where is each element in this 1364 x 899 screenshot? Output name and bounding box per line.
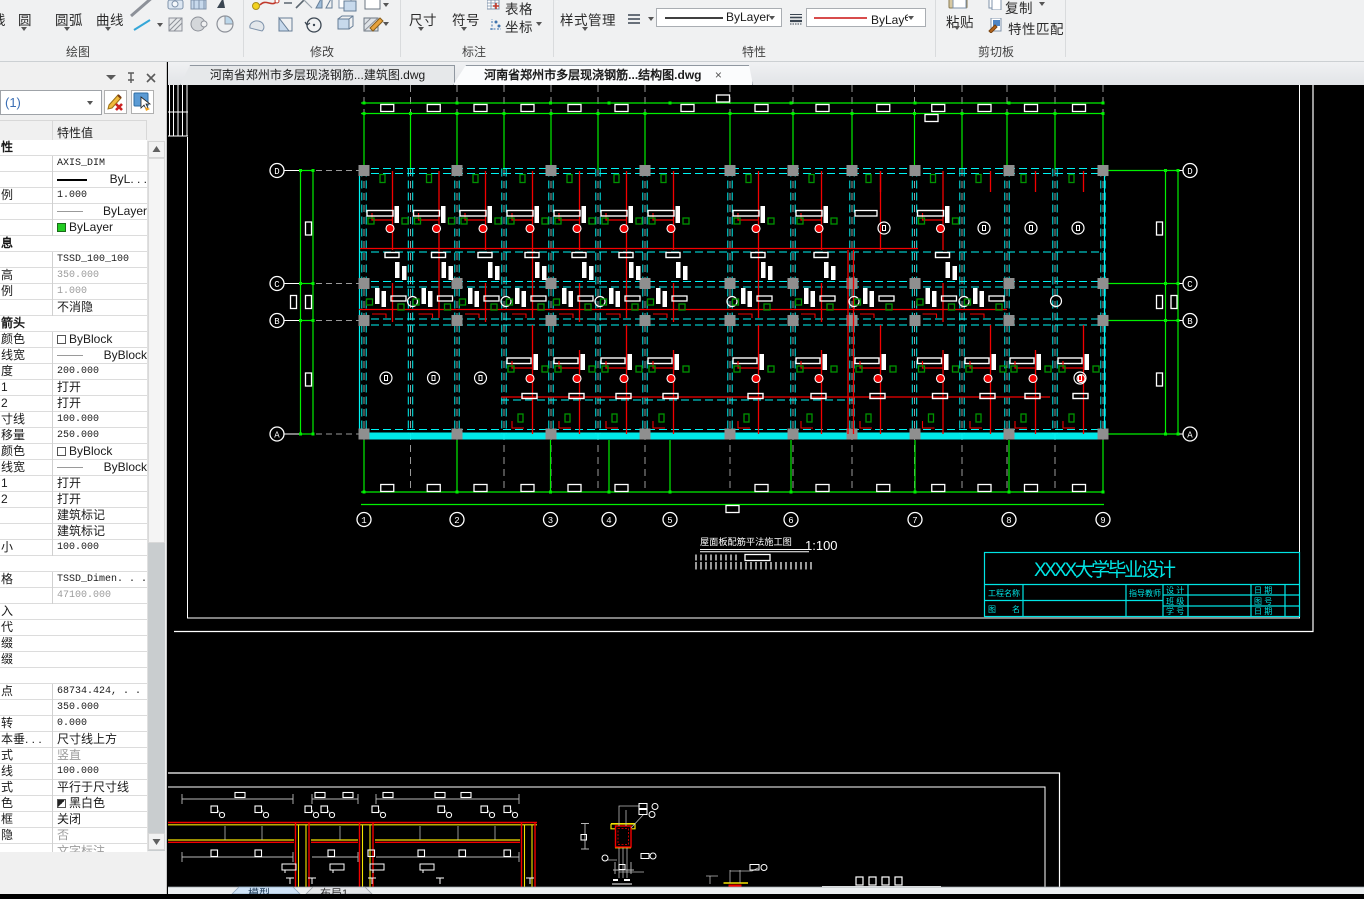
svg-text:1:100: 1:100: [805, 538, 838, 553]
svg-text:工程名称: 工程名称: [988, 588, 1020, 598]
svg-text:B: B: [274, 317, 280, 327]
svg-text:C: C: [1187, 280, 1193, 290]
svg-text:模型: 模型: [248, 886, 270, 894]
svg-text:班 级: 班 级: [1166, 596, 1184, 606]
svg-text:4: 4: [606, 516, 611, 526]
svg-text:D: D: [1187, 167, 1192, 177]
svg-text:6: 6: [788, 516, 793, 526]
svg-text:9: 9: [1100, 516, 1105, 526]
svg-text:图 名: 图 名: [988, 604, 1020, 614]
svg-text:1: 1: [361, 516, 366, 526]
svg-text:日 期: 日 期: [1254, 607, 1272, 616]
svg-text:2: 2: [454, 516, 459, 526]
svg-text:3: 3: [548, 516, 553, 526]
svg-text:日 期: 日 期: [1254, 586, 1272, 595]
svg-text:B: B: [1187, 317, 1193, 327]
svg-text:学 号: 学 号: [1166, 606, 1184, 616]
svg-text:8: 8: [1006, 516, 1011, 526]
svg-text:指导教师: 指导教师: [1129, 588, 1161, 598]
svg-text:7: 7: [912, 516, 917, 526]
svg-text:XXXX大学毕业设计: XXXX大学毕业设计: [1034, 559, 1176, 581]
svg-text:布局1: 布局1: [320, 887, 348, 894]
svg-text:D: D: [274, 167, 279, 177]
svg-text:图 号: 图 号: [1254, 597, 1272, 606]
svg-text:设 计: 设 计: [1166, 585, 1184, 595]
svg-text:A: A: [274, 431, 280, 441]
svg-text:A: A: [1187, 431, 1193, 441]
svg-text:屋面板配筋平法施工图: 屋面板配筋平法施工图: [700, 536, 792, 547]
svg-text:C: C: [274, 280, 280, 290]
svg-text:5: 5: [667, 516, 672, 526]
